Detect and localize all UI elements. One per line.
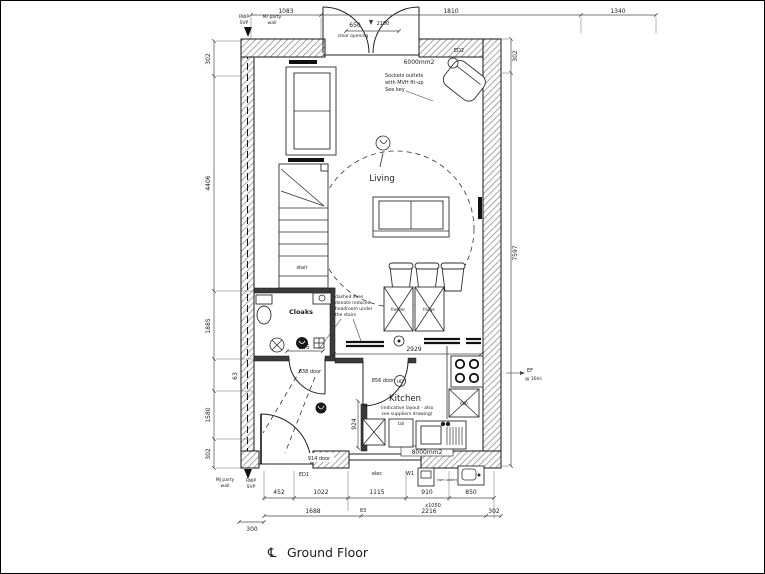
dim-label: 910 <box>421 489 433 496</box>
worktop-edges <box>346 339 481 346</box>
dim-label: 300 <box>246 526 258 533</box>
radiator <box>478 197 482 219</box>
kitchen-note: (indicative layout - also <box>381 405 434 411</box>
vent-area-label: 8000mm2 <box>412 449 443 456</box>
wall-top-left <box>241 39 325 57</box>
wc-pan <box>257 306 271 324</box>
wc-cistern <box>256 295 272 304</box>
sockets-note: See key <box>385 87 405 93</box>
rwp-label: RWP <box>239 14 249 20</box>
sink <box>416 421 466 449</box>
centerline-symbol-icon: ℄ <box>267 546 277 561</box>
dim-label: 302 <box>205 53 212 65</box>
arrowhead-icon <box>520 371 525 375</box>
tall-unit-label: tall <box>398 421 404 426</box>
headroom-note: denote reduced <box>335 300 371 306</box>
wall-bottom-left <box>241 451 259 468</box>
floor-plan-sheet: 1083 1810 1340 650 2100 clear opening ED… <box>0 0 765 574</box>
clear-opening-label: clear opening <box>338 33 369 39</box>
dim-label: 1022 <box>313 489 328 496</box>
room-label-kitchen: Kitchen <box>389 394 421 404</box>
dim-label: 302 <box>488 508 500 515</box>
door-label: 856 door <box>372 378 395 384</box>
door-838-swing <box>289 358 325 394</box>
armchair <box>440 57 488 104</box>
radiator <box>288 158 324 162</box>
headroom-note: headroom under <box>335 306 373 312</box>
dim-label: 1810 <box>443 8 458 15</box>
hob <box>451 356 483 387</box>
kitchen-note: see suppliers drawing) <box>382 411 433 417</box>
room-label-cloaks: Cloaks <box>289 308 313 316</box>
dim-label: 7597 <box>512 245 519 260</box>
sockets-note: Sockets outlets <box>385 73 424 79</box>
text-labels: 1083 1810 1340 650 2100 clear opening ED… <box>205 8 626 533</box>
rwp-arrow-bottom-icon <box>244 469 252 479</box>
dim-label: 2216 <box>421 508 436 515</box>
party-wall-label: wall <box>221 483 230 489</box>
head-height-label: 2100 <box>377 21 390 27</box>
svp-label: SVP <box>247 484 256 490</box>
oven-label: 600 <box>460 401 468 406</box>
dim-label: 1115 <box>369 489 384 496</box>
svp-label: SVP <box>240 20 249 26</box>
party-wall-label: M/ party <box>263 14 282 20</box>
dim-label: 63 <box>232 372 239 380</box>
door-id-label: ED1 <box>299 472 309 478</box>
radiator <box>289 60 317 64</box>
door-id-label: ED2 <box>454 48 464 54</box>
sockets-note: with MVH fit-up <box>385 80 424 86</box>
dim-label: 1340 <box>610 8 625 15</box>
dim-label: 924 <box>351 418 358 430</box>
elec-label: elec <box>372 471 383 477</box>
freezer-label: freezer <box>391 307 405 312</box>
dim-label: 1083 <box>278 8 293 15</box>
dim-label: 2929 <box>406 346 421 353</box>
dim-label: 1885 <box>205 318 212 333</box>
dim-label: 650 <box>349 22 361 29</box>
party-wall-label: MJ party <box>216 477 235 483</box>
extract-fan-label: EF <box>527 368 533 374</box>
dim-label: 302 <box>512 50 519 62</box>
dim-label: 945 <box>298 344 310 351</box>
headroom-note: dashed lines <box>335 294 364 300</box>
dim-label: 452 <box>273 489 285 496</box>
extract-fan-rate: @ 30l/s <box>525 376 542 382</box>
ground-floor-plan-drawing: 1083 1810 1340 650 2100 clear opening ED… <box>1 1 765 574</box>
dim-label: 83 <box>360 508 366 514</box>
fridge-label: fridge <box>423 307 435 312</box>
newel-post <box>321 164 328 171</box>
headroom-note: the stairs <box>335 312 357 318</box>
w1-label: W1 <box>406 471 414 477</box>
stair-label: stair <box>296 265 308 271</box>
room-label-living: Living <box>369 174 394 184</box>
wm-under-label: (wm under) <box>437 478 458 482</box>
dim-label: 302 <box>205 448 212 460</box>
heat-detector-label: HD <box>397 379 403 384</box>
level-marker-icon <box>369 20 373 25</box>
door-label: 838 door <box>299 369 322 375</box>
drawing-title: ℄ Ground Floor <box>267 545 369 561</box>
electrical-symbol-icon <box>316 403 327 414</box>
rwp-label: RWP <box>246 478 256 484</box>
door-label: 914 door <box>308 456 331 462</box>
vent-area-label: 6000mm2 <box>404 59 435 66</box>
dim-label: 1688 <box>305 508 320 515</box>
dim-label: 4406 <box>205 175 212 190</box>
dim-label: 1580 <box>205 407 212 422</box>
party-wall-label: wall <box>268 20 277 26</box>
wall-right <box>483 39 501 468</box>
floor-title: Ground Floor <box>287 545 369 560</box>
dishwasher-unit <box>363 419 385 445</box>
dim-label: 850 <box>465 489 477 496</box>
